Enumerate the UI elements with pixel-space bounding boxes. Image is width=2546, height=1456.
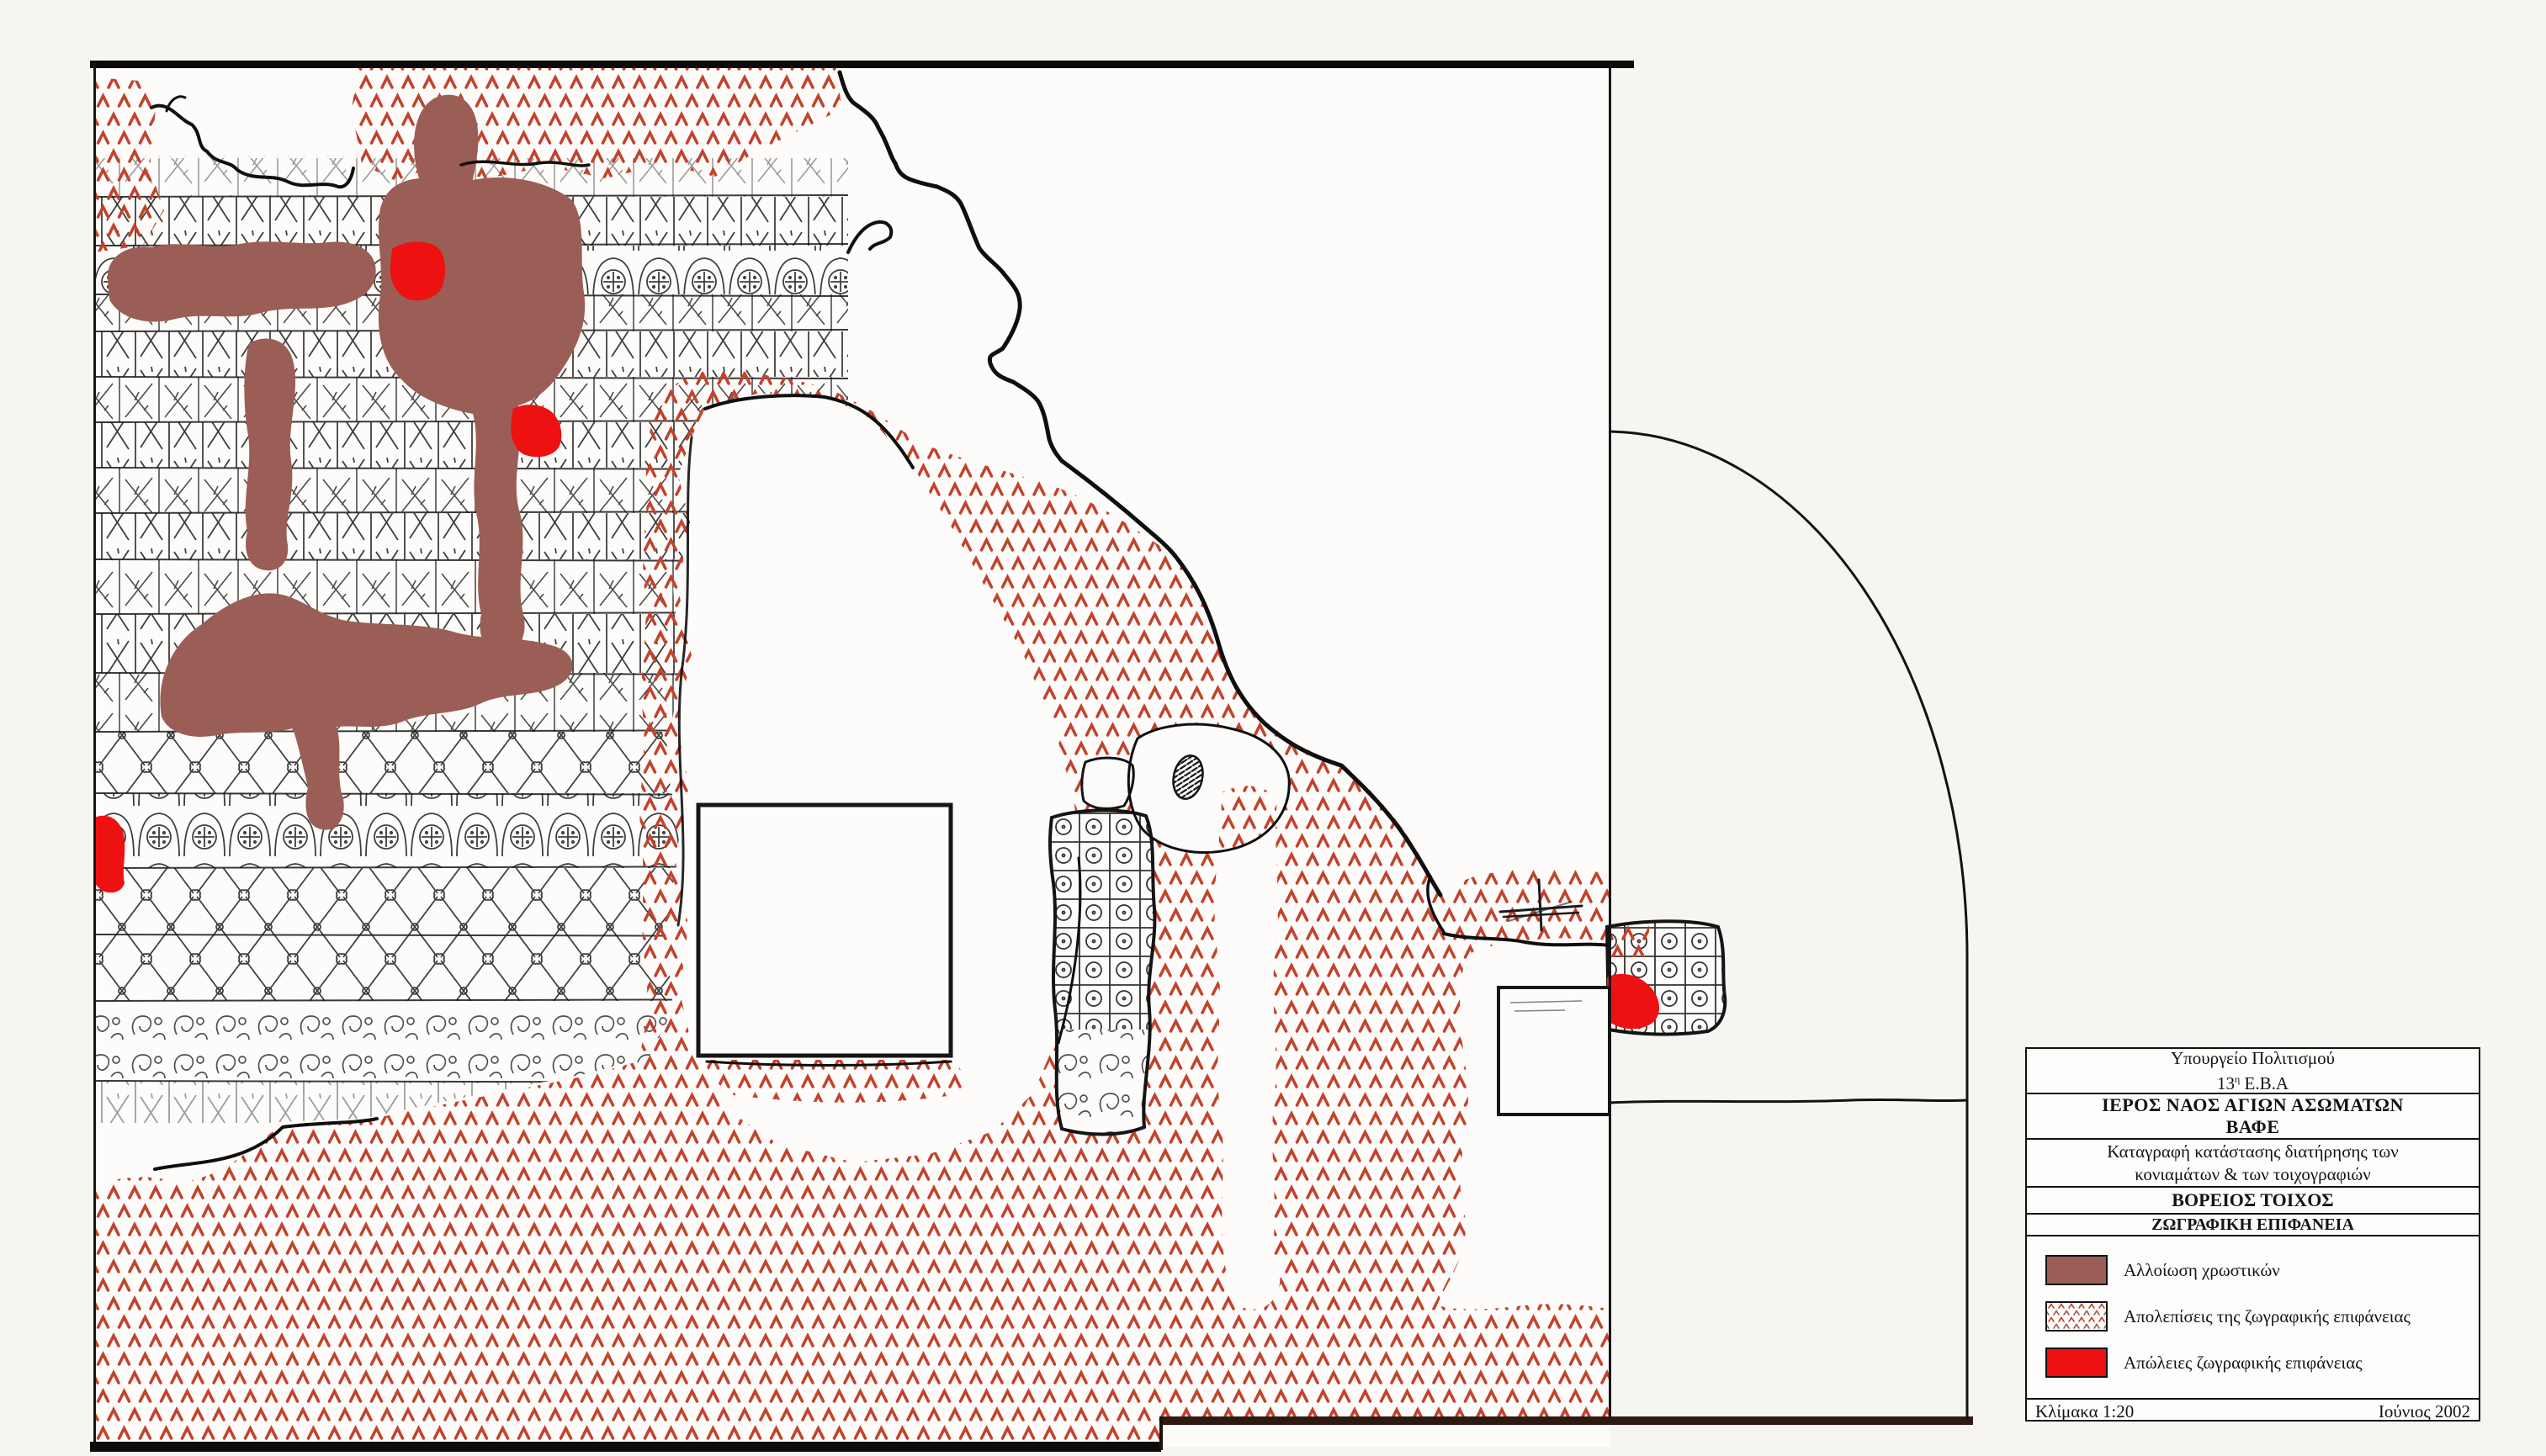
flaking-swatch xyxy=(2045,1301,2108,1332)
legend-label: Αλλοίωση χρωστικών xyxy=(2124,1255,2280,1285)
scale-label: Κλίμακα 1:20 xyxy=(2035,1401,2134,1422)
survey-line-1: Καταγραφή κατάστασης διατήρησης των xyxy=(2107,1141,2398,1163)
legend-label: Απολεπίσεις της ζωγραφικής επιφάνειας xyxy=(2124,1301,2411,1332)
left-edge-line xyxy=(93,62,96,1448)
right-edge-line xyxy=(1609,66,1611,1422)
legend-item-alteration: Αλλοίωση χρωστικών xyxy=(2027,1255,2479,1289)
flaking-swatch-pattern xyxy=(2047,1303,2106,1330)
loss-patch xyxy=(390,241,445,300)
top-edge-bar xyxy=(90,61,1634,68)
alteration-swatch xyxy=(2045,1255,2108,1285)
church-name: ΙΕΡΟΣ ΝΑΟΣ ΑΓΙΩΝ ΑΣΩΜΑΤΩΝ xyxy=(2102,1094,2404,1116)
legend-item-flaking: Απολεπίσεις της ζωγραφικής επιφάνειας xyxy=(2027,1301,2479,1335)
legend-item-loss: Απώλειες ζωγραφικής επιφάνειας xyxy=(2027,1347,2479,1381)
wall-title: ΒΟΡΕΙΟΣ ΤΟΙΧΟΣ xyxy=(2027,1188,2479,1215)
bottom-step xyxy=(1159,1416,1163,1450)
title-block-church: ΙΕΡΟΣ ΝΑΟΣ ΑΓΙΩΝ ΑΣΩΜΑΤΩΝ ΒΑΦΕ xyxy=(2027,1094,2479,1140)
surface-title: ΖΩΓΡΑΦΙΚΗ ΕΠΙΦΑΝΕΙΑ xyxy=(2027,1215,2479,1236)
bottom-edge-bar-right xyxy=(1159,1416,1973,1425)
conservation-drawing-sheet: Υπουργείο Πολιτισμού 13η Ε.Β.Α ΙΕΡΟΣ ΝΑΟ… xyxy=(0,0,2546,1456)
title-block-footer: Κλίμακα 1:20 Ιούνιος 2002 xyxy=(2027,1400,2479,1423)
ephorate-name: 13η Ε.Β.Α xyxy=(2217,1069,2289,1094)
loss-patch xyxy=(94,816,125,893)
location-name: ΒΑΦΕ xyxy=(2226,1116,2280,1138)
window-right xyxy=(1498,987,1610,1115)
window-central xyxy=(698,805,951,1056)
date-label: Ιούνιος 2002 xyxy=(2379,1401,2470,1422)
bottom-edge-bar xyxy=(90,1442,1161,1452)
title-block-ministry: Υπουργείο Πολιτισμού 13η Ε.Β.Α xyxy=(2027,1049,2479,1094)
title-block: Υπουργείο Πολιτισμού 13η Ε.Β.Α ΙΕΡΟΣ ΝΑΟ… xyxy=(2025,1047,2480,1422)
loss-swatch xyxy=(2045,1347,2108,1378)
legend-label: Απώλειες ζωγραφικής επιφάνειας xyxy=(2124,1347,2363,1378)
ministry-name: Υπουργείο Πολιτισμού xyxy=(2171,1048,2335,1069)
legend: Αλλοίωση χρωστικών xyxy=(2027,1236,2479,1400)
title-block-survey: Καταγραφή κατάστασης διατήρησης των κονι… xyxy=(2027,1140,2479,1188)
fresco-fragment-column xyxy=(1048,758,1159,1139)
survey-line-2: κονιαμάτων & των τοιχογραφιών xyxy=(2135,1163,2370,1186)
